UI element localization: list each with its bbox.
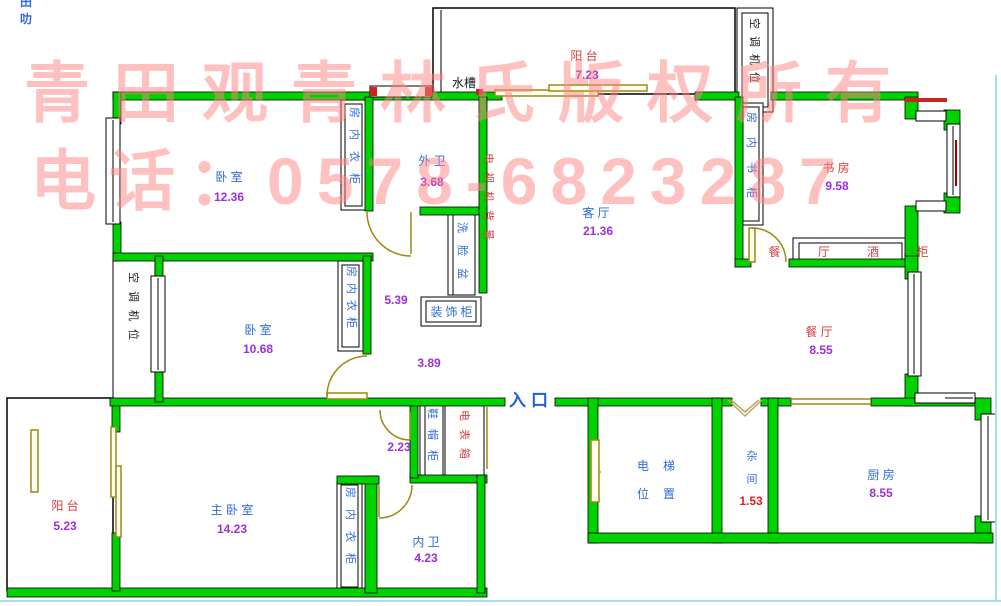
label-bedroom1-area: 12.36 bbox=[214, 191, 244, 203]
label-master-name: 主 卧 室 bbox=[211, 504, 254, 516]
label-dining-name: 餐 厅 bbox=[805, 326, 832, 338]
bottom-balcony-rail bbox=[7, 398, 113, 590]
label-shoe-cabinet: 鞋帽柜 bbox=[426, 408, 437, 471]
label-study-name: 书 房 bbox=[822, 162, 849, 174]
label-kitchen-area: 8.55 bbox=[869, 487, 892, 499]
label-elevator-line1: 电梯 bbox=[637, 460, 689, 472]
label-outer-bath-area: 3.68 bbox=[420, 176, 443, 188]
label-dim-corridor: 3.89 bbox=[417, 357, 440, 369]
label-living-area: 21.36 bbox=[583, 225, 613, 237]
label-meter-box: 电表箱 bbox=[458, 410, 469, 467]
label-inner-bath-area: 4.23 bbox=[414, 552, 437, 564]
corner-mark-top: 田 bbox=[20, 0, 32, 10]
label-utility-name: 杂间 bbox=[745, 450, 756, 496]
label-tv-wall: 电视机背景 bbox=[482, 153, 493, 248]
corner-mark-bottom: 叻 bbox=[20, 10, 32, 27]
label-dim-entry: 2.23 bbox=[387, 441, 410, 453]
label-bedroom1-name: 卧 室 bbox=[215, 171, 242, 183]
label-balcony-top-area: 7.23 bbox=[575, 69, 598, 81]
label-wash-basin: 洗脸盆 bbox=[456, 222, 467, 291]
label-balcony-bottom-area: 5.23 bbox=[53, 520, 76, 532]
label-living-name: 客 厅 bbox=[582, 207, 609, 219]
label-utility-area: 1.53 bbox=[739, 495, 762, 507]
label-sink: 水槽 bbox=[452, 77, 476, 89]
label-ac-position-top: 空调机位 bbox=[748, 18, 759, 90]
label-kitchen-name: 厨 房 bbox=[867, 469, 894, 481]
label-outer-bath-name: 外 卫 bbox=[418, 155, 445, 167]
label-study-area: 9.58 bbox=[825, 180, 848, 192]
label-bedroom2-name: 卧 室 bbox=[244, 324, 271, 336]
label-bedroom2-area: 10.68 bbox=[243, 343, 273, 355]
label-deco-cabinet: 装饰柜 bbox=[430, 306, 475, 318]
windows-layer bbox=[106, 86, 996, 522]
label-balcony-top-name: 阳 台 bbox=[570, 50, 597, 62]
label-balcony-bottom-name: 阳 台 bbox=[51, 500, 78, 512]
label-wine-cabinet: 餐 厅 酒 柜 bbox=[768, 246, 945, 258]
label-wardrobe1: 房内衣柜 bbox=[348, 107, 359, 195]
label-wardrobe3: 房内衣柜 bbox=[344, 487, 355, 575]
floor-plan-canvas: 田 叻 阳 台 7.23 水槽 卧 室 12.36 外 卫 3.68 客 厅 2… bbox=[0, 0, 1001, 606]
label-dining-area: 8.55 bbox=[809, 344, 832, 356]
sink-fixture bbox=[370, 86, 432, 97]
floor-plan-drawing bbox=[0, 0, 1001, 606]
label-ac-position-left: 空调机位 bbox=[127, 272, 138, 348]
label-entrance: 入口 bbox=[509, 392, 553, 409]
label-bookcase: 房内书柜 bbox=[745, 112, 756, 212]
label-master-area: 14.23 bbox=[217, 523, 247, 535]
label-wardrobe2: 房内衣柜 bbox=[345, 266, 356, 334]
label-inner-bath-name: 内 卫 bbox=[412, 536, 439, 548]
label-elevator-line2: 位置 bbox=[637, 488, 689, 500]
label-dim-hall: 5.39 bbox=[384, 294, 407, 306]
